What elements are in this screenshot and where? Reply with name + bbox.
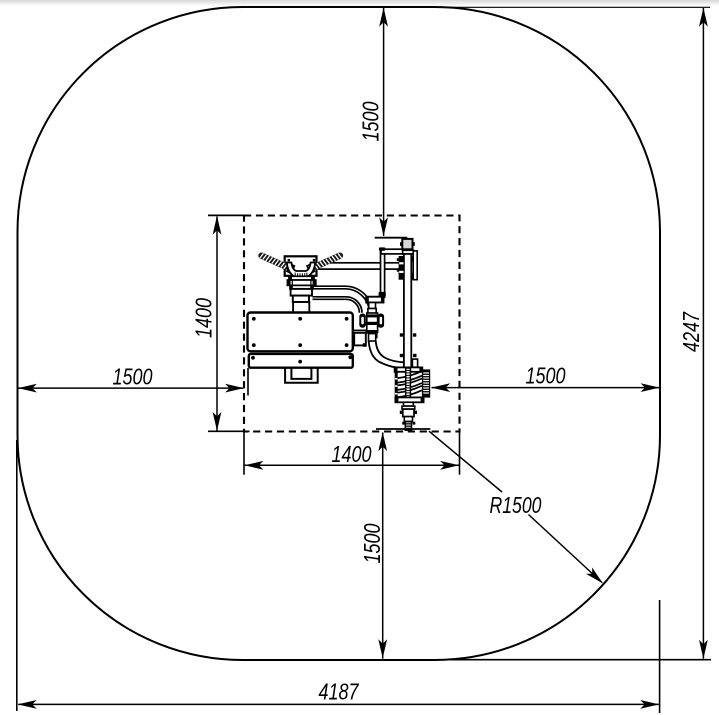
svg-text:4247: 4247 [678,311,704,352]
svg-text:1500: 1500 [113,363,153,389]
svg-text:1500: 1500 [359,523,385,563]
svg-text:R1500: R1500 [490,492,542,518]
svg-text:1500: 1500 [358,101,384,141]
svg-text:1400: 1400 [191,298,217,338]
svg-text:1400: 1400 [332,441,372,467]
svg-text:4187: 4187 [319,679,360,705]
svg-text:1500: 1500 [526,363,566,389]
